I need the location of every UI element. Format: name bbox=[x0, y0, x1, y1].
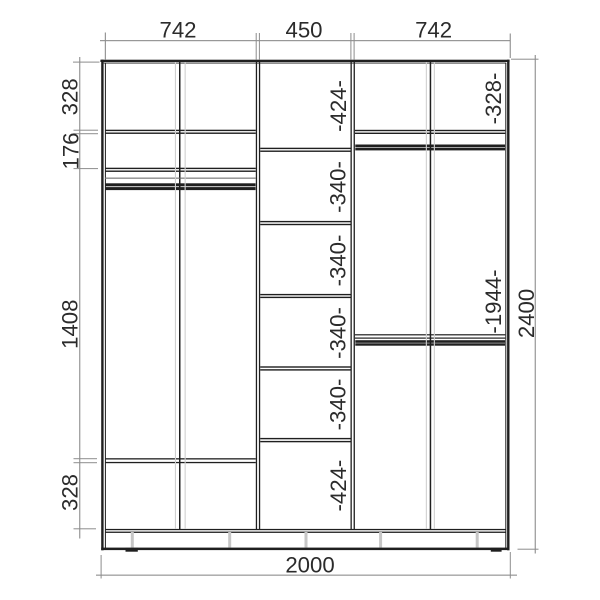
svg-text:-340-: -340- bbox=[326, 235, 351, 287]
svg-text:176: 176 bbox=[58, 132, 83, 169]
svg-text:742: 742 bbox=[415, 18, 452, 43]
svg-text:-424-: -424- bbox=[326, 460, 351, 512]
svg-text:-1944-: -1944- bbox=[481, 269, 506, 333]
svg-text:-424-: -424- bbox=[326, 80, 351, 132]
svg-text:-328-: -328- bbox=[481, 73, 506, 125]
svg-text:328: 328 bbox=[57, 78, 82, 115]
svg-text:1408: 1408 bbox=[58, 300, 83, 349]
svg-text:-340-: -340- bbox=[326, 161, 351, 213]
svg-text:742: 742 bbox=[159, 18, 196, 43]
svg-text:2000: 2000 bbox=[285, 553, 334, 578]
svg-text:2400: 2400 bbox=[514, 289, 539, 338]
svg-text:328: 328 bbox=[58, 474, 83, 511]
svg-text:-340-: -340- bbox=[326, 379, 351, 431]
svg-text:-340-: -340- bbox=[326, 307, 351, 359]
svg-text:450: 450 bbox=[285, 18, 322, 43]
